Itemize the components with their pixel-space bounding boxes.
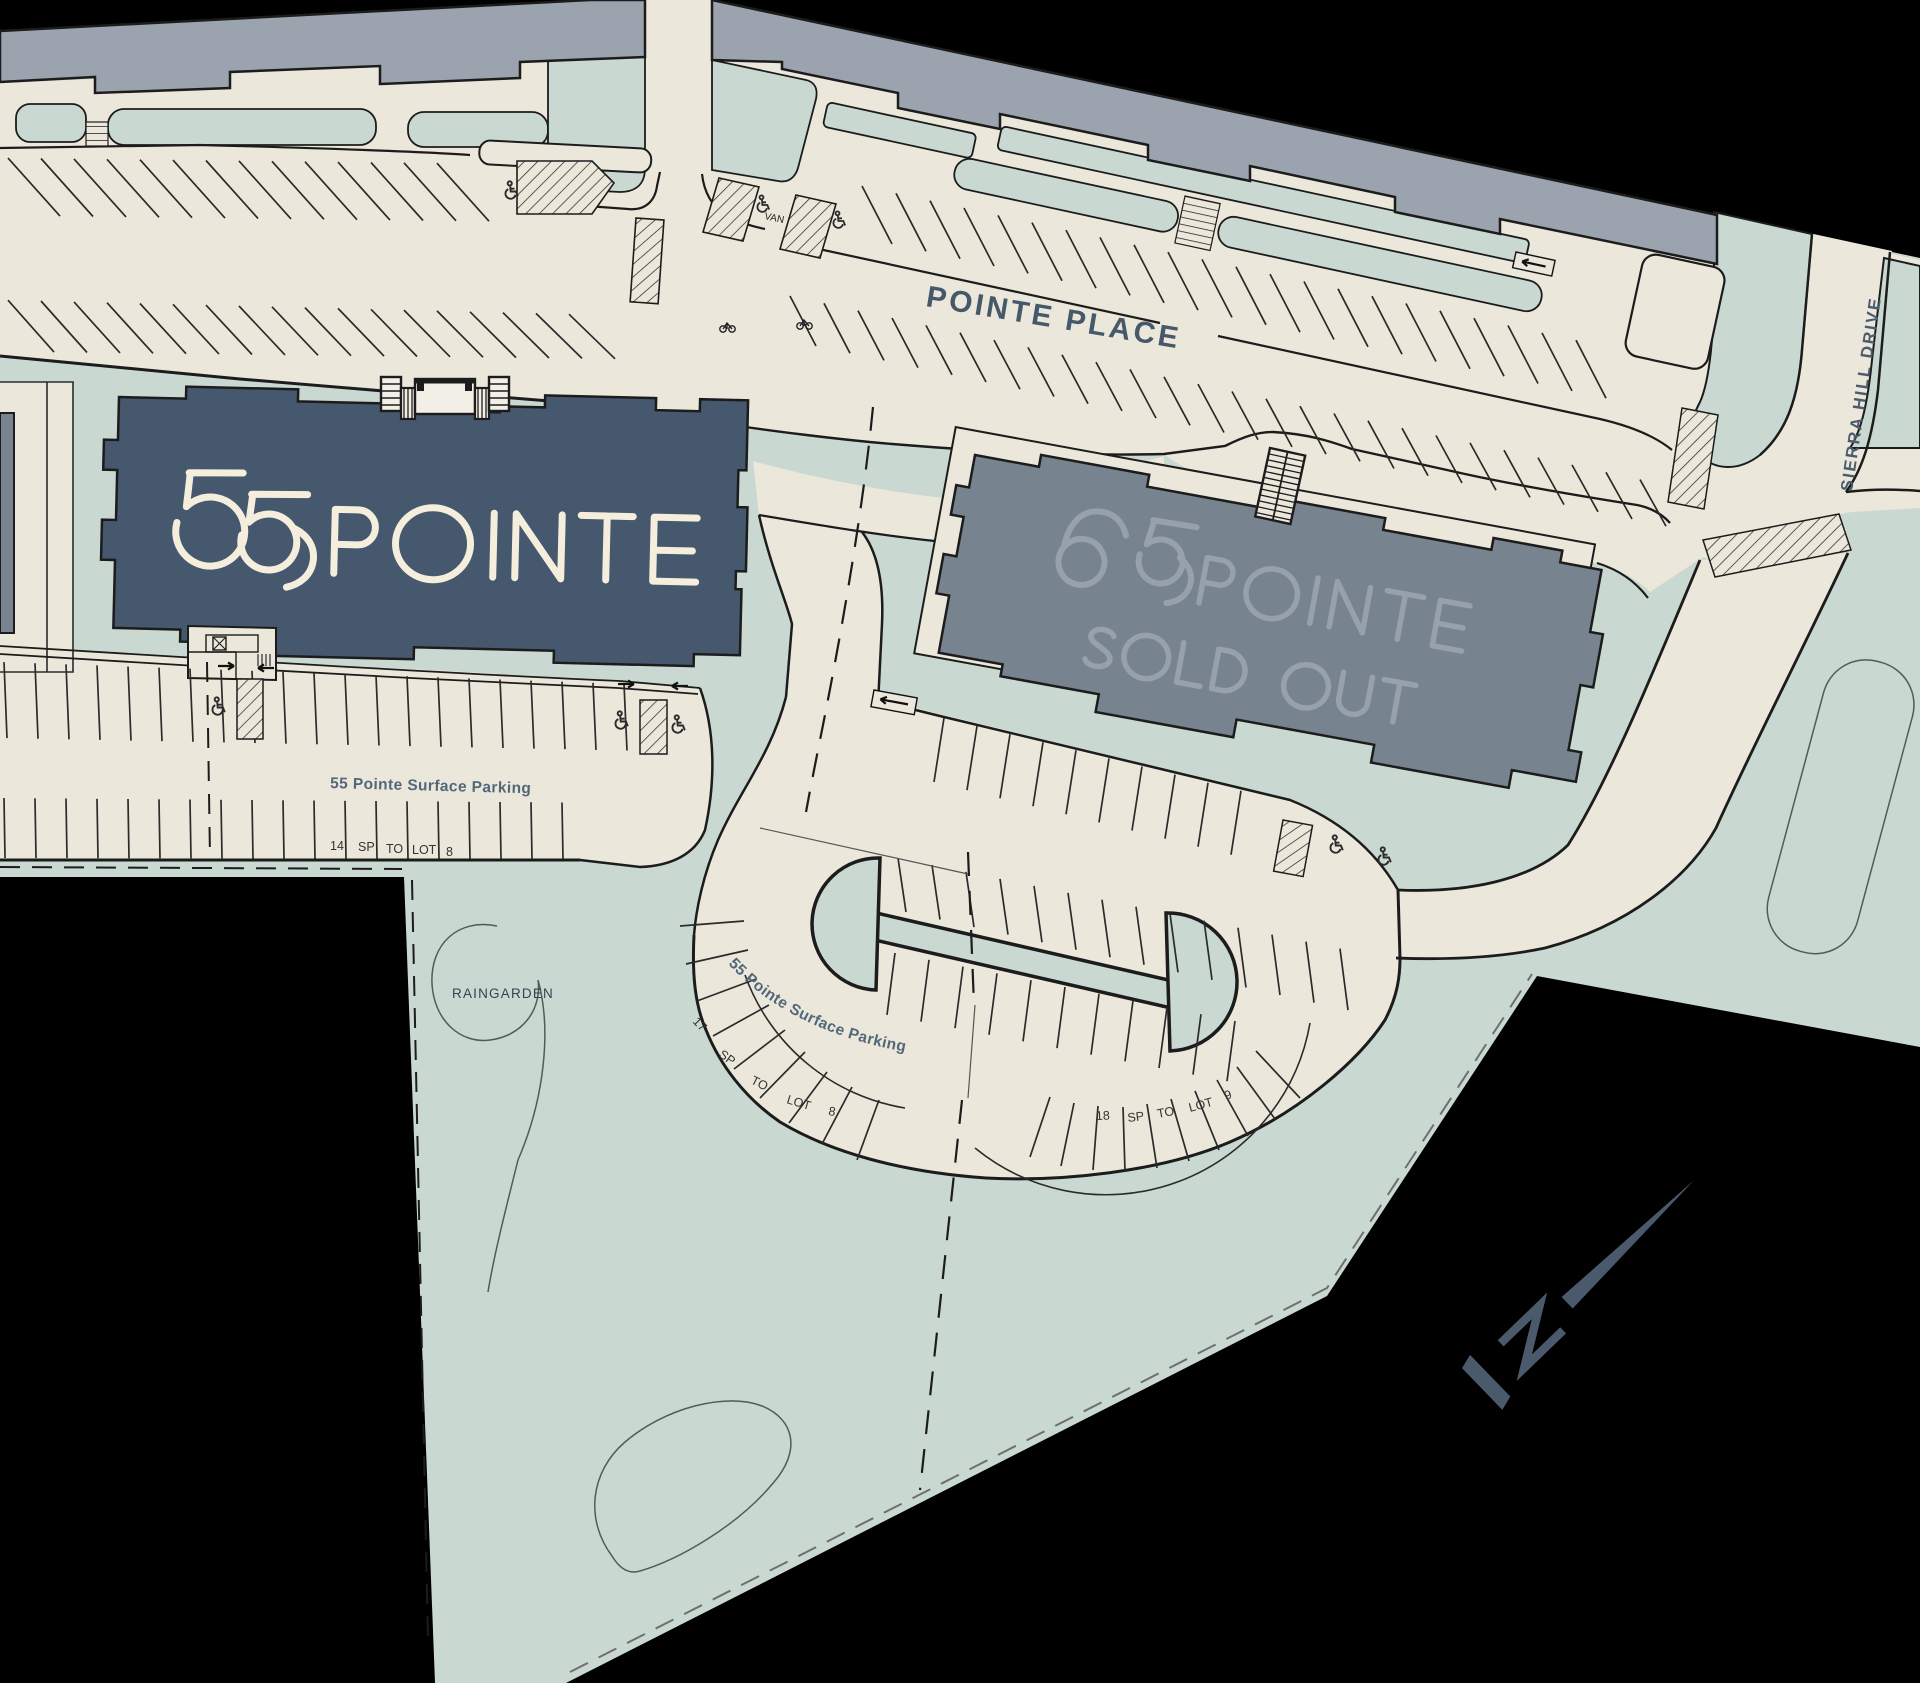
svg-text:18: 18 [1096,1109,1110,1123]
svg-text:LOT: LOT [412,843,437,857]
svg-text:14: 14 [330,839,344,853]
svg-text:TO: TO [386,842,403,856]
svg-text:SP: SP [358,840,375,854]
svg-text:8: 8 [446,845,453,859]
svg-text:SP: SP [1127,1109,1145,1125]
svg-text:RAINGARDEN: RAINGARDEN [452,986,554,1001]
